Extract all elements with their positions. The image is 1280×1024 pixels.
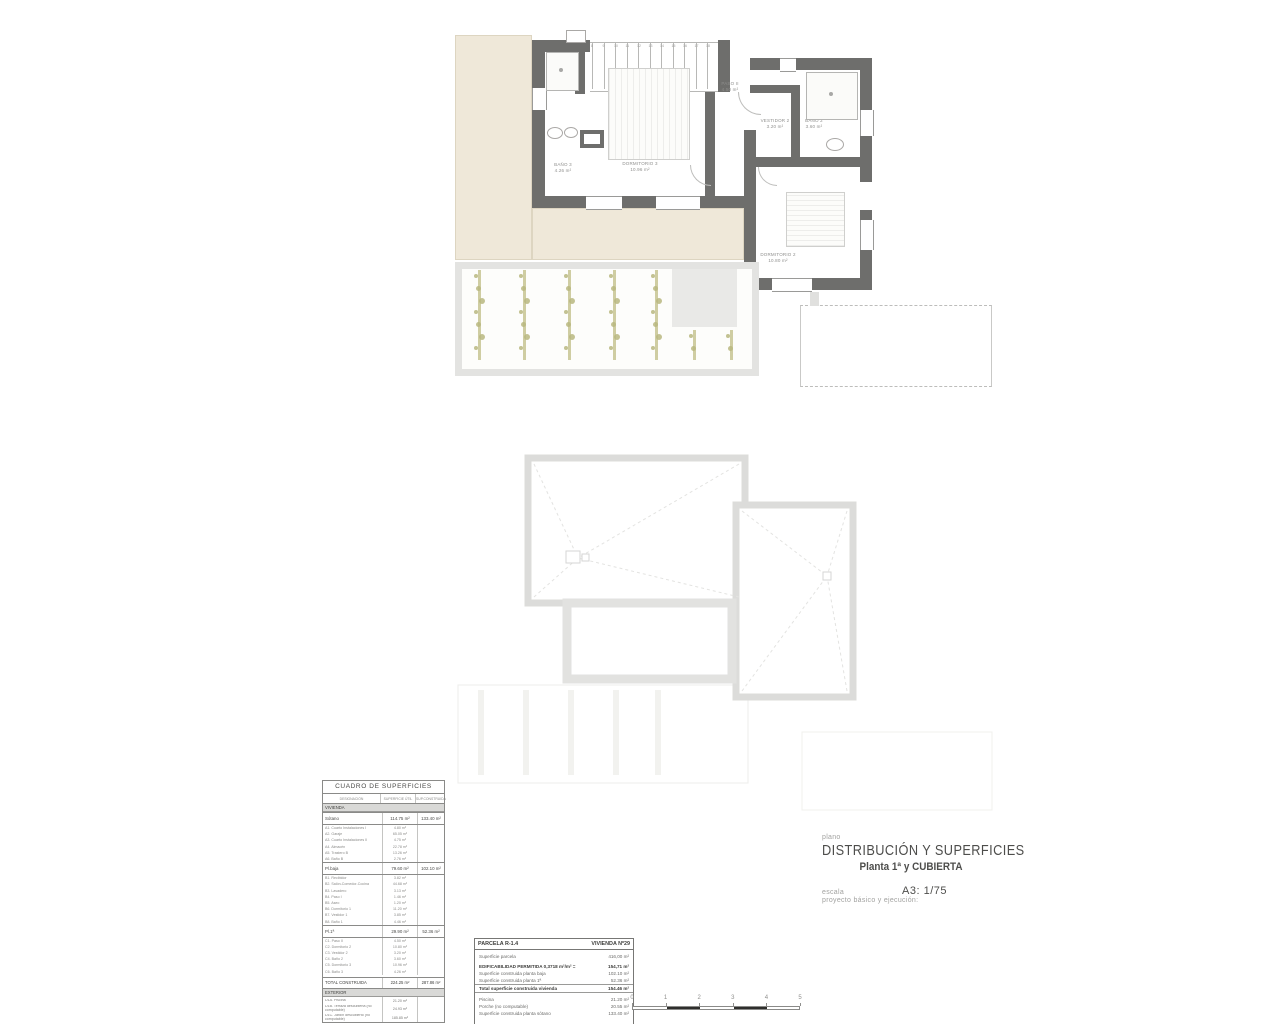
row-util: 29.90 m² [382, 926, 417, 937]
parcela-row: Superficie parcela416,00 m² [475, 953, 633, 960]
row-built: 102.10 m² [417, 863, 444, 874]
stair-tread [604, 43, 605, 89]
scale-number: 3 [731, 995, 734, 1001]
ghost-hedges [478, 690, 661, 775]
row-label: A5. Trastero B [323, 851, 382, 855]
roof-plan-cubierta [450, 450, 1010, 830]
roof-drain-icon [566, 551, 580, 563]
stair-number: 8 [591, 44, 593, 48]
window [772, 278, 812, 292]
surfaces-table: CUADRO DE SUPERFICIES DESIGNACIÓN SUPERF… [322, 780, 445, 1023]
parcela-rows: Superficie parcela416,00 m²EDIFICABILIDA… [475, 953, 633, 1017]
title-block: plano DISTRIBUCIÓN Y SUPERFICIES Planta … [822, 834, 1007, 904]
parcela-row-value: 416,00 m² [608, 953, 629, 960]
wall [532, 40, 545, 208]
row-label: A3. Cuarto Instalaciones II [323, 838, 382, 842]
scale-number: 2 [698, 995, 701, 1001]
plant-icon [569, 334, 575, 340]
wall [750, 58, 872, 70]
table-row: D1C. Jardín descubierto (no computable)1… [323, 1014, 444, 1022]
plant-icon [609, 274, 613, 278]
row-label: Sótano [323, 816, 382, 821]
plant-icon [474, 310, 478, 314]
right-roof [736, 505, 853, 697]
plant-icon [476, 286, 481, 291]
table-row: EXTERIOR [323, 989, 444, 997]
escala-value: A3: 1/75 [902, 885, 947, 897]
surfaces-table-title: CUADRO DE SUPERFICIES [323, 781, 444, 794]
plant-icon [651, 346, 655, 350]
surfaces-table-rows: VIVIENDASótano114.75 m²133.40 m²A1. Cuar… [323, 804, 444, 1022]
table-row: D1A. Piscina21.20 m² [323, 997, 444, 1005]
row-label: B5. Aseo [323, 901, 382, 905]
parcela-row-label: Porche (no computable) [479, 1003, 528, 1010]
plant-icon [519, 346, 523, 350]
plant-icon [609, 346, 613, 350]
row-label: Pl.baja [323, 866, 382, 871]
row-label: C4. Baño 2 [323, 957, 382, 961]
table-row: C6. Baño 34.26 m² [323, 969, 444, 975]
plant-icon [651, 310, 655, 314]
room-area: 3.20 m² [755, 124, 795, 130]
plant-icon [521, 286, 526, 291]
scale-number: 5 [798, 995, 801, 1001]
row-label: B7. Vestidor 1 [323, 913, 382, 917]
col-sup-construida: SUP.CONSTRUIDA [415, 794, 446, 803]
row-built [417, 1005, 444, 1013]
plant-icon [656, 334, 662, 340]
plant-icon [474, 274, 478, 278]
row-built [417, 856, 444, 862]
parcela-row-value: 133.40 m² [608, 1010, 629, 1017]
stair-number: 15 [672, 44, 676, 48]
sheet-title: DISTRIBUCIÓN Y SUPERFICIES [822, 842, 979, 859]
vivienda-id: VIVIENDA Nº29 [591, 941, 630, 947]
parcela-row: Piscina21.20 m² [475, 996, 633, 1003]
plant-icon [691, 346, 696, 351]
row-label: C3. Vestidor 2 [323, 951, 382, 955]
room-area: 3.60 m² [795, 124, 833, 130]
scale-number: 4 [765, 995, 768, 1001]
shower-drain-icon [559, 68, 563, 72]
parcela-id: PARCELA R-1.4 [478, 941, 518, 947]
room-area: 10.96 m² [610, 167, 670, 173]
row-built: 287.86 m² [417, 978, 444, 988]
wall [744, 157, 872, 167]
parcela-row-label: Superficie construida planta 1ª [479, 977, 541, 984]
plant-icon [564, 274, 568, 278]
ghost-garden-outline [458, 685, 748, 783]
wall-notch [566, 30, 586, 43]
parcela-row-label: Total superficie construida vivienda [479, 985, 557, 992]
plant-icon [564, 346, 568, 350]
parcela-row: Superficie construida planta baja102.10 … [475, 970, 633, 977]
floor-plan-planta-1: 89101112131415161718PASO II4.50 m²VESTID… [450, 30, 995, 392]
parcela-info-box: PARCELA R-1.4 VIVIENDA Nº29 Superficie p… [474, 938, 634, 1024]
porch-outline [800, 305, 992, 387]
scale-tick [699, 1003, 700, 1006]
parcela-row-value: 102.10 m² [608, 970, 629, 977]
parcela-header: PARCELA R-1.4 VIVIENDA Nº29 [475, 939, 633, 950]
hedge-strip [568, 270, 571, 360]
row-label: B2. Salón-Comedor-Cocina [323, 882, 382, 886]
room-label-bano-3: BAÑO 34.26 m² [542, 162, 584, 173]
plant-icon [479, 298, 485, 304]
row-built: 52.36 m² [417, 926, 444, 937]
parcela-row-label: Piscina [479, 996, 494, 1003]
parcela-row-value: 21.20 m² [611, 996, 629, 1003]
table-row: Pl.baja79.60 m²102.10 m² [323, 862, 444, 875]
stair-number: 13 [649, 44, 653, 48]
stair-number: 9 [603, 44, 605, 48]
parapet [567, 603, 732, 679]
col-designacion: DESIGNACIÓN [323, 797, 380, 801]
plant-icon [524, 298, 530, 304]
plant-icon [653, 322, 658, 327]
row-built [417, 997, 444, 1005]
plant-icon [521, 322, 526, 327]
stair-number: 18 [706, 44, 710, 48]
row-util: 24.93 m² [382, 1005, 417, 1013]
row-label: B1. Recibidor [323, 876, 382, 880]
parcela-row-value: 154.46 m² [608, 985, 629, 992]
hedge-strip [655, 270, 658, 360]
hedge-strip [613, 270, 616, 360]
toilet-icon [826, 138, 844, 151]
hedge-strip [478, 270, 481, 360]
row-built [417, 1014, 444, 1022]
row-label: C1. Paso II [323, 939, 382, 943]
scale-number: 0 [630, 995, 633, 1001]
row-built: 133.40 m² [417, 813, 444, 824]
row-util: 4.46 m² [382, 918, 417, 924]
stair-number: 14 [660, 44, 664, 48]
stair-number: 16 [683, 44, 687, 48]
plant-icon [564, 310, 568, 314]
room-label-paso-2: PASO II4.50 m² [708, 81, 752, 92]
row-label: C5. Dormitorio 3 [323, 963, 382, 967]
window [780, 58, 796, 72]
row-label: B4. Paso I [323, 895, 382, 899]
row-label: D1C. Jardín descubierto (no computable) [323, 1014, 382, 1022]
parcela-row-value: 154,71 m² [608, 963, 629, 970]
parcela-row-label: Superficie construida planta sótano [479, 1010, 551, 1017]
row-label: B3. Lavadero [323, 889, 382, 893]
table-row: VIVIENDA [323, 804, 444, 812]
plano-label: plano [822, 834, 1007, 841]
table-row: D1B. Terraza descubierta (no computable)… [323, 1005, 444, 1013]
project-note: proyecto básico y ejecución: [822, 897, 1007, 904]
door-arc [690, 165, 711, 186]
plant-icon [611, 286, 616, 291]
bed-dormitorio-3 [608, 68, 690, 160]
plant-icon [689, 334, 693, 338]
plant-icon [653, 286, 658, 291]
row-util: 2.76 m² [382, 856, 417, 862]
wall-shaft [584, 134, 600, 144]
plant-icon [569, 298, 575, 304]
table-row: Sótano114.75 m²133.40 m² [323, 812, 444, 825]
parcela-row: Total superficie construida vivienda154.… [475, 984, 633, 993]
plant-icon [479, 334, 485, 340]
escala-label: escala [822, 889, 844, 896]
room-label-dormitorio-3: DORMITORIO 310.96 m² [610, 161, 670, 172]
row-built [417, 918, 444, 924]
parcela-row: EDIFICABILIDAD PERMITIDA 0,3718 m²/m² =1… [475, 963, 633, 970]
bed-dormitorio-2 [786, 192, 845, 247]
room-name: VESTIDOR 2 [755, 118, 795, 124]
plant-icon [519, 274, 523, 278]
sheet-subtitle: Planta 1ª y CUBIERTA [831, 861, 991, 873]
scale-tick [632, 1003, 633, 1006]
terrace-deck [455, 35, 532, 260]
plant-icon [519, 310, 523, 314]
row-label: B8. Baño 1 [323, 920, 382, 924]
parcela-row-label: Superficie construida planta baja [479, 970, 546, 977]
plant-icon [656, 298, 662, 304]
parcela-row-value: 52.36 m² [611, 977, 629, 984]
shower-drain-icon [829, 92, 833, 96]
row-util: 79.60 m² [382, 863, 417, 874]
surfaces-table-header: DESIGNACIÓN SUPERFICIE ÚTIL SUP.CONSTRUI… [323, 794, 444, 804]
parcela-row-label: EDIFICABILIDAD PERMITIDA 0,3718 m²/m² = [479, 963, 575, 970]
plant-icon [566, 322, 571, 327]
plant-icon [611, 322, 616, 327]
parcela-row: Porche (no computable)20.55 m² [475, 1003, 633, 1010]
shower-icon [806, 72, 858, 120]
plant-icon [524, 334, 530, 340]
row-label: D1A. Piscina [323, 999, 382, 1003]
porch-stub [810, 292, 819, 306]
table-row: TOTAL CONSTRUIDA224.25 m²287.86 m² [323, 977, 444, 989]
scale-bar-black-segment [667, 1007, 701, 1009]
window [586, 196, 622, 210]
plant-icon [474, 346, 478, 350]
row-label: A1. Cuarto Instalaciones I [323, 826, 382, 830]
plant-icon [609, 310, 613, 314]
shower-icon [546, 52, 579, 91]
stair-number: 17 [695, 44, 699, 48]
sink-icon [564, 127, 578, 138]
parcela-row-label: Superficie parcela [479, 953, 516, 960]
toilet-icon [547, 127, 563, 139]
row-util: 224.25 m² [382, 978, 417, 988]
scale-tick [733, 1003, 734, 1006]
row-label: D1B. Terraza descubierta (no computable) [323, 1005, 382, 1013]
plant-icon [566, 286, 571, 291]
row-util: 4.26 m² [382, 969, 417, 975]
scale-bar-black-segment [734, 1007, 768, 1009]
scale-bar: 012345 [632, 995, 800, 1013]
scale-bar-rule [632, 1006, 800, 1010]
plant-icon [614, 298, 620, 304]
scale-tick [766, 1003, 767, 1006]
window [656, 196, 700, 210]
ghost-porch-outline [802, 732, 992, 810]
roof-drain-icon [582, 554, 589, 561]
window [860, 220, 874, 250]
scale-tick [666, 1003, 667, 1006]
plant-icon [651, 274, 655, 278]
door-arc [758, 167, 777, 186]
parcela-row-value: 20.55 m² [611, 1003, 629, 1010]
room-label-vestidor-2: VESTIDOR 23.20 m² [755, 118, 795, 129]
row-label: C2. Dormitorio 2 [323, 945, 382, 949]
plant-icon [476, 322, 481, 327]
plant-icon [728, 346, 733, 351]
hedge-strip [523, 270, 526, 360]
row-label: Pl.1ª [323, 929, 382, 934]
room-area: 4.26 m² [542, 168, 584, 174]
plant-icon [726, 334, 730, 338]
scale-tick [800, 1003, 801, 1006]
row-label: A6. Baño B [323, 857, 382, 861]
row-label: A2. Garaje [323, 832, 382, 836]
row-label: C6. Baño 3 [323, 970, 382, 974]
hedge-strip [693, 330, 696, 360]
window [532, 88, 547, 110]
roof-drain-icon [823, 572, 831, 580]
stair-number: 10 [614, 44, 618, 48]
plant-icon [614, 334, 620, 340]
table-row: Pl.1ª29.90 m²52.36 m² [323, 925, 444, 938]
stair-number: 12 [637, 44, 641, 48]
hedge-strip [730, 330, 733, 360]
terrace-deck [532, 208, 744, 260]
parcela-row: Superficie construida planta 1ª52.36 m² [475, 977, 633, 984]
stair-tread [592, 43, 593, 89]
scale-number: 1 [664, 995, 667, 1001]
stair-tread [696, 43, 697, 89]
window [860, 110, 874, 136]
door-arc [738, 92, 761, 115]
parcela-row: Superficie construida planta sótano133.4… [475, 1010, 633, 1017]
row-label: B6. Dormitorio 1 [323, 907, 382, 911]
stair-number: 11 [626, 44, 630, 48]
row-util: 114.75 m² [382, 813, 417, 824]
drawing-sheet: 89101112131415161718PASO II4.50 m²VESTID… [0, 0, 1280, 1024]
row-util: 185.85 m² [382, 1014, 417, 1022]
row-label: TOTAL CONSTRUIDA [323, 980, 382, 985]
row-util: 21.20 m² [382, 997, 417, 1005]
row-label: A4. Almacén [323, 845, 382, 849]
col-superficie-util: SUPERFICIE ÚTIL [380, 794, 415, 803]
garden-paved-patch [672, 269, 737, 327]
row-built [417, 969, 444, 975]
